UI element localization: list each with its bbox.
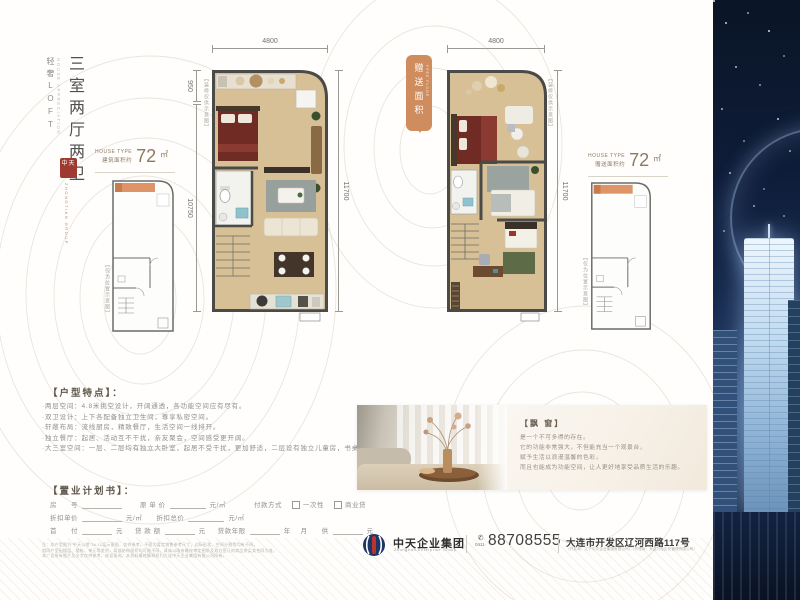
water-reflection xyxy=(713,512,800,600)
phone-meta: ✆ 0411· xyxy=(475,535,486,547)
bonus-badge-text: 赠送面积 xyxy=(413,63,426,119)
phone-area-code: 0411· xyxy=(475,542,486,547)
bonus-area-badge: 赠送面积 FREE FLOOR xyxy=(406,55,432,131)
unit-original-price: 元/㎡ xyxy=(210,499,226,509)
blank-room-number xyxy=(82,501,122,509)
purchase-row-1: 房 号 原 单 价 元/㎡ 付款方式 一次性 商业贷 xyxy=(50,499,366,509)
photo-fade xyxy=(477,405,507,490)
purchase-heading: 【置业计划书】： xyxy=(48,483,135,497)
gallery-title: 【飘 窗】 xyxy=(520,418,684,429)
plan2-type-en: HOUSE TYPE xyxy=(588,153,625,159)
skyscraper xyxy=(744,238,794,516)
plan1-type-en: HOUSE TYPE xyxy=(95,149,132,155)
plan2-area-value: 72 xyxy=(629,151,649,169)
phone-icon: ✆ xyxy=(478,535,484,542)
series-label-en: HOUSE APPRECIATION xyxy=(56,58,61,135)
plan1-dim-top: 4800 xyxy=(212,48,328,49)
disclaimer-line: 本广告所有图片及文字仅供参考，欢迎垂询。本资料最终解释权归大连中天企业集团有限公… xyxy=(42,553,277,559)
floorplan-2 xyxy=(447,70,547,322)
gallery-line: 赋予生活以浪漫温馨的色彩， xyxy=(520,453,684,463)
plan1-label-rule xyxy=(95,172,175,173)
real-estate-poster: { "sidebar": { "series": "轻奢LOFT", "seri… xyxy=(0,0,800,600)
stars xyxy=(713,0,715,2)
company-logo-icon xyxy=(361,532,387,558)
plant xyxy=(312,112,321,121)
blank-loan-amount xyxy=(165,527,195,535)
series-label: 轻奢LOFT xyxy=(45,57,56,133)
desk-chair xyxy=(479,254,490,265)
plan2-dim-top-label: 4800 xyxy=(488,38,504,45)
plan1-dim-left-lower: 10750 xyxy=(196,104,197,312)
plan1-deco-note: 【装修仅供示意图】 xyxy=(203,76,210,130)
blank-discount-unit xyxy=(82,514,122,522)
unit-down-payment: 元 xyxy=(116,525,123,535)
plant xyxy=(531,166,539,174)
blank-original-price xyxy=(170,501,206,509)
plan1-dim-right: 11700 xyxy=(338,70,339,312)
plan1-dim-top-label: 4800 xyxy=(262,38,278,45)
unit-loan-term: 年 xyxy=(284,525,291,535)
plan1-dim-11700: 11700 xyxy=(342,182,349,201)
plan1-dim-left-upper: 950 xyxy=(196,70,197,102)
fridge xyxy=(296,90,316,108)
unit-loan-amount: 元 xyxy=(199,525,206,535)
sofa xyxy=(264,218,318,236)
bedroom2-rug xyxy=(487,166,529,192)
ac-unit xyxy=(300,313,320,321)
keyplan-2-note: 【仅为位置示意图】 xyxy=(582,255,589,309)
bay-window-photo xyxy=(357,405,507,490)
plan2-area-label: HOUSE TYPE 赠送面积约 72 ㎡ xyxy=(588,151,661,169)
plan1-area-label: HOUSE TYPE 建筑面积约 72 ㎡ xyxy=(95,147,168,165)
option-one-time: 一次性 xyxy=(303,499,324,509)
purchase-row-3: 首 付 元 贷 款 额 元 贷款年限 年 月 供 元 xyxy=(50,525,374,535)
keyplan-2 xyxy=(590,182,652,330)
gallery-line: 它的功能非常强大，不但能充当一个观景台， xyxy=(520,443,684,453)
field-down-payment: 首 付 xyxy=(50,525,78,535)
gallery-text-block: 【飘 窗】 是一个不可多得的存在。 它的功能非常强大，不但能充当一个观景台， 赋… xyxy=(520,418,684,473)
floorplan-1 xyxy=(212,70,328,322)
plan1-area-unit: ㎡ xyxy=(160,149,168,160)
field-loan-amount: 贷 款 额 xyxy=(135,525,161,535)
keyplan-1 xyxy=(112,180,174,332)
footer-divider xyxy=(466,535,467,553)
purchase-row-2: 折扣单价 元/㎡ 折扣总价 元/㎡ xyxy=(50,512,245,522)
field-payment-method: 付款方式 xyxy=(254,499,282,509)
plan1-area-value: 72 xyxy=(136,147,156,165)
plan2-dim-top: 4800 xyxy=(447,48,545,49)
gallery-strip: 【飘 窗】 是一个不可多得的存在。 它的功能非常强大，不但能充当一个观景台， 赋… xyxy=(357,405,707,490)
option-commercial-loan: 商业贷 xyxy=(345,499,366,509)
keyplan-1-note: 【仅为位置示意图】 xyxy=(104,262,111,316)
field-discount-unit-price: 折扣单价 xyxy=(50,512,78,522)
bonus-badge-en: FREE FLOOR xyxy=(425,65,429,97)
disclaimer: 注：本户型图为“中天公馆”3#-11层示意图，仅供参考。平面为暂定销售参考尺寸，… xyxy=(42,542,277,559)
tv-cabinet xyxy=(264,167,310,173)
plan1-dim-10750: 10750 xyxy=(186,198,193,217)
desk xyxy=(473,266,503,277)
checkbox-one-time xyxy=(292,501,300,509)
address-note: （开发商：辽宁中天企业集团有限公司）（代理商：大连万怡企业管理有限公司） xyxy=(566,547,697,552)
building-right xyxy=(788,300,800,516)
blank-discount-total xyxy=(188,514,224,522)
seal-caption: ZHONGTIAN GROUP xyxy=(64,183,69,245)
gallery-line: 是一个不可多得的存在。 xyxy=(520,433,684,443)
green-rug xyxy=(503,252,535,274)
night-city-panel xyxy=(713,0,800,600)
tv-bench xyxy=(311,126,322,174)
plan2-dim-right: 11700 xyxy=(557,70,558,312)
field-discount-total: 折扣总价 xyxy=(156,512,184,522)
company-seal-icon: 中天 xyxy=(60,158,77,178)
disclaimer-line: 注：本户型图为“中天公馆”3#-11层示意图，仅供参考。平面为暂定销售参考尺寸，… xyxy=(42,542,277,548)
plan2-label-rule xyxy=(588,176,668,177)
plan2-deco-note: 【装修仅供示意图】 xyxy=(547,76,554,130)
plan1-dim-950: 950 xyxy=(186,80,193,92)
tower-antenna xyxy=(768,224,770,238)
unit-discount-total: 元/㎡ xyxy=(228,512,244,522)
plan2-area-caption: 赠送面积约 xyxy=(595,160,625,168)
gallery-line: 而且也能成为功能空间，让人更好地享受品质生活的乐趣。 xyxy=(520,463,684,473)
plan2-area-unit: ㎡ xyxy=(653,153,661,164)
checkbox-commercial-loan xyxy=(334,501,342,509)
phone-number: 88708555 xyxy=(488,532,561,550)
company-name-en: Zhongtian Enterprise Group xyxy=(394,548,456,552)
plan1-area-caption: 建筑面积约 xyxy=(102,156,132,164)
field-original-price: 原 单 价 xyxy=(140,499,166,509)
plan2-dim-11700: 11700 xyxy=(561,182,568,201)
blank-down-payment xyxy=(82,527,112,535)
field-room-number: 房 号 xyxy=(50,499,78,509)
footer-bar: 中天企业集团 Zhongtian Enterprise Group ✆ 0411… xyxy=(357,531,707,563)
building-left xyxy=(713,330,737,516)
field-monthly-payment: 月 供 xyxy=(301,525,329,535)
field-loan-term: 贷款年限 xyxy=(218,525,246,535)
unit-discount-unit: 元/㎡ xyxy=(126,512,142,522)
ac-unit xyxy=(521,313,539,321)
blank-loan-term xyxy=(250,527,280,535)
features-heading: 【户型特点】： xyxy=(48,385,124,399)
footer-divider xyxy=(558,535,559,553)
